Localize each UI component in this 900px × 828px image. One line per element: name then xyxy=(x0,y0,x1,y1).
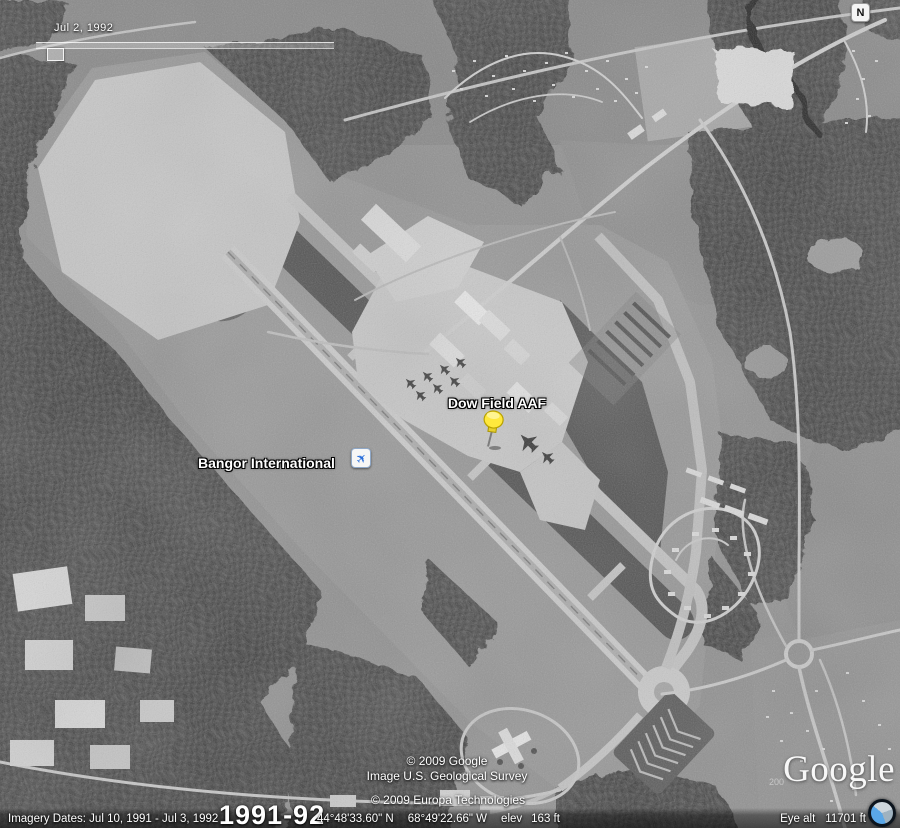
aerial-imagery[interactable] xyxy=(0,0,900,828)
imagery-dates-text: Imagery Dates: Jul 10, 1991 - Jul 3, 199… xyxy=(8,813,218,825)
north-compass-icon[interactable]: N xyxy=(851,3,870,22)
google-earth-viewport: Jul 2, 1992 N Dow Field AAF Bangor Inter… xyxy=(0,0,900,828)
elevation-value: 163 ft xyxy=(531,813,560,825)
film-grain xyxy=(0,0,900,828)
longitude-value: 68°49'22.66" W xyxy=(408,813,487,825)
streaming-progress-indicator xyxy=(868,799,896,827)
time-slider-date: Jul 2, 1992 xyxy=(54,22,113,34)
pushpin-icon[interactable] xyxy=(479,410,507,452)
status-bar: Imagery Dates: Jul 10, 1991 - Jul 3, 199… xyxy=(0,808,900,828)
eye-alt-value: 11701 ft xyxy=(825,813,866,825)
placemark-label-dow-field[interactable]: Dow Field AAF xyxy=(412,395,582,411)
airport-icon[interactable]: ✈ xyxy=(351,448,371,468)
eye-altitude-readout: Eye alt11701 ft xyxy=(780,813,866,825)
attribution-europa: © 2009 Europa Technologies xyxy=(371,793,525,807)
latitude-value: 44°48'33.60" N xyxy=(317,813,394,825)
attribution-year-fragment: 200 xyxy=(769,777,784,787)
imagery-year-range: 1991-92 xyxy=(219,800,325,828)
elev-label: elev xyxy=(501,813,522,825)
coordinates-readout: 44°48'33.60" N68°49'22.66" Welev163 ft xyxy=(317,813,574,825)
attribution-usgs: Image U.S. Geological Survey xyxy=(367,769,528,784)
time-slider-handle[interactable] xyxy=(47,48,64,61)
attribution-google: © 2009 Google xyxy=(367,754,528,769)
airplane-icon: ✈ xyxy=(353,450,370,467)
placemark-label-bangor-international[interactable]: Bangor International xyxy=(198,455,335,471)
time-slider[interactable]: Jul 2, 1992 xyxy=(36,22,336,64)
map-attribution: © 2009 Google Image U.S. Geological Surv… xyxy=(367,754,528,784)
compass-label: N xyxy=(857,7,865,19)
eye-alt-label: Eye alt xyxy=(780,813,815,825)
google-watermark-logo: Google xyxy=(783,748,895,791)
time-slider-track[interactable] xyxy=(36,42,334,49)
